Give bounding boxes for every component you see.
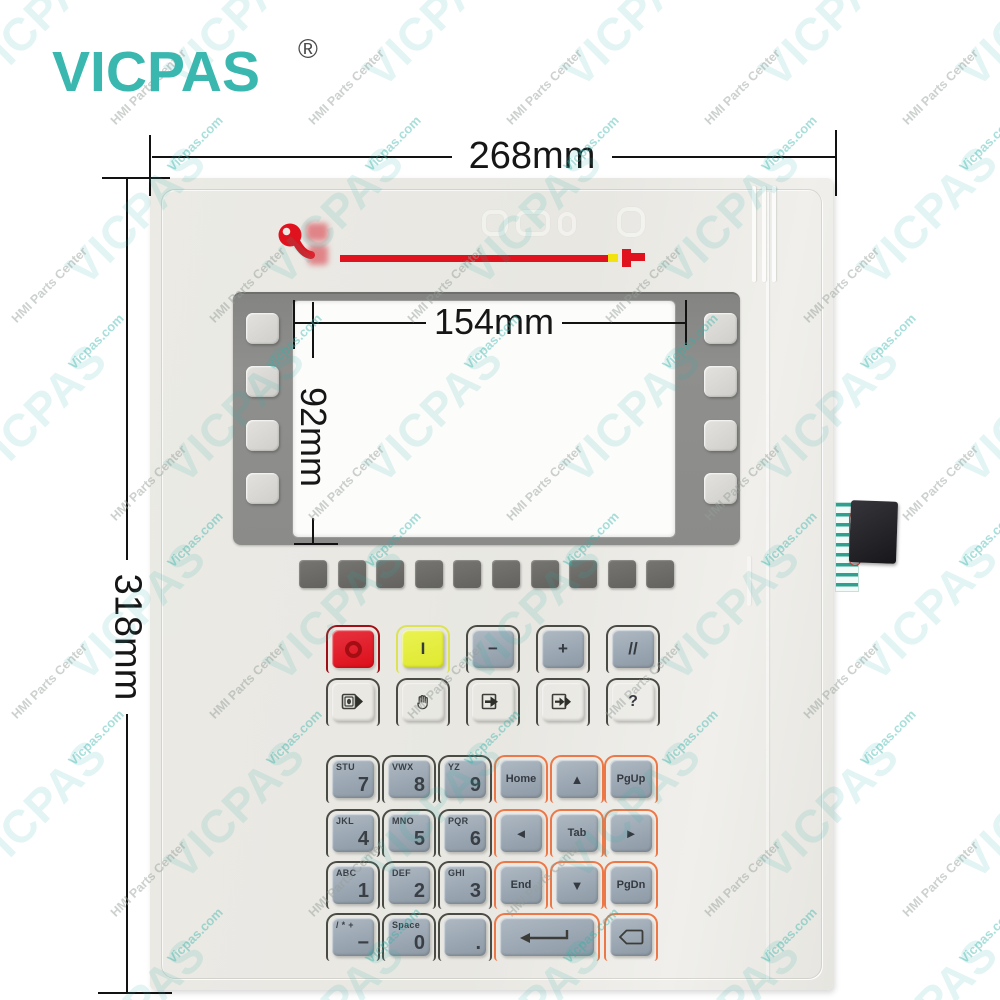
key-main-label: 3 — [470, 880, 481, 903]
function-key-9[interactable] — [608, 560, 636, 588]
softkey-left-1[interactable] — [246, 313, 279, 344]
key-main-label: 4 — [358, 828, 369, 851]
key-main-label: 5 — [414, 828, 425, 851]
key-sub-label: YZ — [448, 762, 460, 772]
box-arrow-icon — [472, 683, 514, 721]
function-key-10[interactable] — [646, 560, 674, 588]
key-label: End — [500, 866, 542, 904]
key-sub-label: JKL — [336, 816, 354, 826]
softkey-left-3[interactable] — [246, 420, 279, 451]
key-sub-label: VWX — [392, 762, 413, 772]
key-eight[interactable]: VWX8 — [388, 760, 430, 798]
key-pgup[interactable]: PgUp — [610, 760, 652, 798]
key-sub-label: ABC — [336, 868, 356, 878]
key-label: ? — [612, 683, 654, 721]
key-help[interactable]: ? — [612, 683, 654, 721]
key-seven[interactable]: STU7 — [332, 760, 374, 798]
function-key-7[interactable] — [531, 560, 559, 588]
vicpas-logo: VICPAS ® — [52, 44, 260, 101]
key-plus[interactable]: + — [542, 630, 584, 668]
key-pgdn[interactable]: PgDn — [610, 866, 652, 904]
key-three[interactable]: GHI3 — [444, 866, 486, 904]
key-sub-label: Space — [392, 920, 420, 930]
key-manual-mode[interactable] — [402, 683, 444, 721]
key-arrow-left[interactable]: ◄ — [500, 814, 542, 852]
key-label: Tab — [556, 814, 598, 852]
softkey-right-1[interactable] — [704, 313, 737, 344]
key-sub-label: MNO — [392, 816, 414, 826]
key-label: // — [612, 630, 654, 668]
key-glyph: ► — [610, 814, 652, 852]
key-arrow-down[interactable]: ▼ — [556, 866, 598, 904]
key-one[interactable]: ABC1 — [332, 866, 374, 904]
key-six[interactable]: PQR6 — [444, 814, 486, 852]
power-ring-icon — [332, 630, 374, 668]
connector-block — [849, 500, 898, 564]
keys-layer: I−+//?STU7VWX8YZ9Home▲PgUpJKL4MNO5PQR6◄T… — [0, 0, 1000, 1000]
softkey-right-4[interactable] — [704, 473, 737, 504]
key-label: − — [472, 630, 514, 668]
hand-icon — [402, 683, 444, 721]
function-key-1[interactable] — [299, 560, 327, 588]
key-main-label: 0 — [414, 932, 425, 955]
key-dot[interactable]: . — [444, 918, 486, 956]
vicpas-logo-text: VICPAS — [52, 44, 260, 101]
key-symbols-minus[interactable]: / * +− — [332, 918, 374, 956]
key-label: PgDn — [610, 866, 652, 904]
key-main-label: 7 — [358, 774, 369, 797]
key-sub-label: GHI — [448, 868, 465, 878]
key-five[interactable]: MNO5 — [388, 814, 430, 852]
key-arrow-right[interactable]: ► — [610, 814, 652, 852]
key-label: + — [542, 630, 584, 668]
key-minus[interactable]: − — [472, 630, 514, 668]
key-sub-label: PQR — [448, 816, 468, 826]
box-arrow2-icon — [542, 683, 584, 721]
screen-arrow-icon — [332, 683, 374, 721]
function-key-5[interactable] — [453, 560, 481, 588]
key-main-label: − — [357, 932, 369, 955]
key-main-label: 2 — [414, 880, 425, 903]
function-key-8[interactable] — [569, 560, 597, 588]
key-page-select[interactable] — [332, 683, 374, 721]
key-zero[interactable]: Space0 — [388, 918, 430, 956]
key-tab[interactable]: Tab — [556, 814, 598, 852]
key-nine[interactable]: YZ9 — [444, 760, 486, 798]
key-data-forward[interactable] — [542, 683, 584, 721]
product-photo: I−+//?STU7VWX8YZ9Home▲PgUpJKL4MNO5PQR6◄T… — [0, 0, 1000, 1000]
key-data-entry[interactable] — [472, 683, 514, 721]
key-two[interactable]: DEF2 — [388, 866, 430, 904]
key-glyph: ▲ — [556, 760, 598, 798]
function-key-3[interactable] — [376, 560, 404, 588]
softkey-left-4[interactable] — [246, 473, 279, 504]
key-main-label: 9 — [470, 774, 481, 797]
key-sub-label: / * + — [336, 920, 354, 930]
key-main-label: 8 — [414, 774, 425, 797]
softkey-left-2[interactable] — [246, 366, 279, 397]
function-key-2[interactable] — [338, 560, 366, 588]
key-main-label: 6 — [470, 828, 481, 851]
function-key-4[interactable] — [415, 560, 443, 588]
key-main-label: . — [475, 932, 481, 955]
key-end[interactable]: End — [500, 866, 542, 904]
key-double-slash[interactable]: // — [612, 630, 654, 668]
key-arrow-up[interactable]: ▲ — [556, 760, 598, 798]
key-power-off[interactable] — [332, 630, 374, 668]
key-power-on[interactable]: I — [402, 630, 444, 668]
registered-mark: ® — [298, 34, 318, 65]
key-backspace[interactable] — [610, 918, 652, 956]
key-four[interactable]: JKL4 — [332, 814, 374, 852]
enter-icon — [500, 918, 594, 956]
softkey-right-2[interactable] — [704, 366, 737, 397]
key-glyph: ▼ — [556, 866, 598, 904]
key-label: PgUp — [610, 760, 652, 798]
key-label: Home — [500, 760, 542, 798]
backspace-icon — [610, 918, 652, 956]
key-main-label: 1 — [358, 880, 369, 903]
key-label: I — [402, 630, 444, 668]
key-home[interactable]: Home — [500, 760, 542, 798]
key-sub-label: STU — [336, 762, 355, 772]
function-key-6[interactable] — [492, 560, 520, 588]
softkey-right-3[interactable] — [704, 420, 737, 451]
key-enter[interactable] — [500, 918, 594, 956]
key-glyph: ◄ — [500, 814, 542, 852]
key-sub-label: DEF — [392, 868, 411, 878]
